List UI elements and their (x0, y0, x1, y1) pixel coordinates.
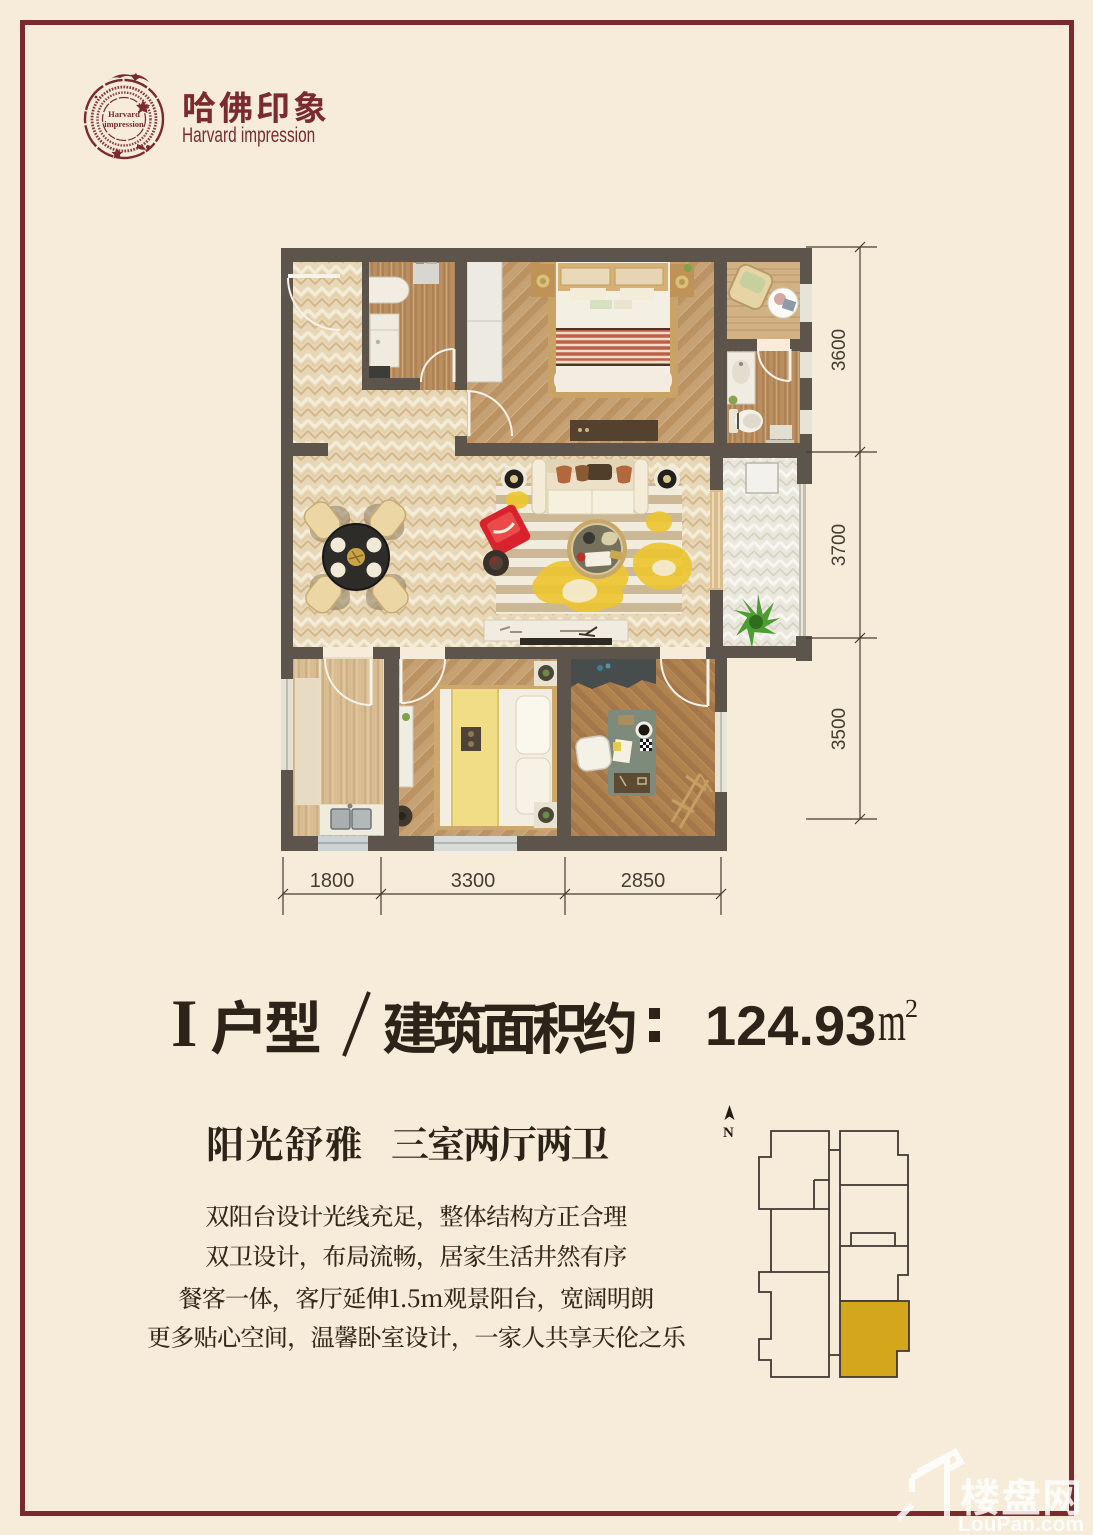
svg-text:Harvard impression: Harvard impression (182, 122, 315, 146)
svg-text:3700: 3700 (829, 524, 850, 566)
svg-text:3300: 3300 (451, 870, 496, 892)
svg-text:3500: 3500 (829, 708, 850, 750)
svg-text:N: N (723, 1125, 734, 1141)
svg-text:LouPan.com: LouPan.com (958, 1513, 1084, 1535)
svg-text:2850: 2850 (621, 870, 666, 892)
svg-text:1800: 1800 (310, 870, 355, 892)
svg-text:3600: 3600 (829, 329, 850, 371)
